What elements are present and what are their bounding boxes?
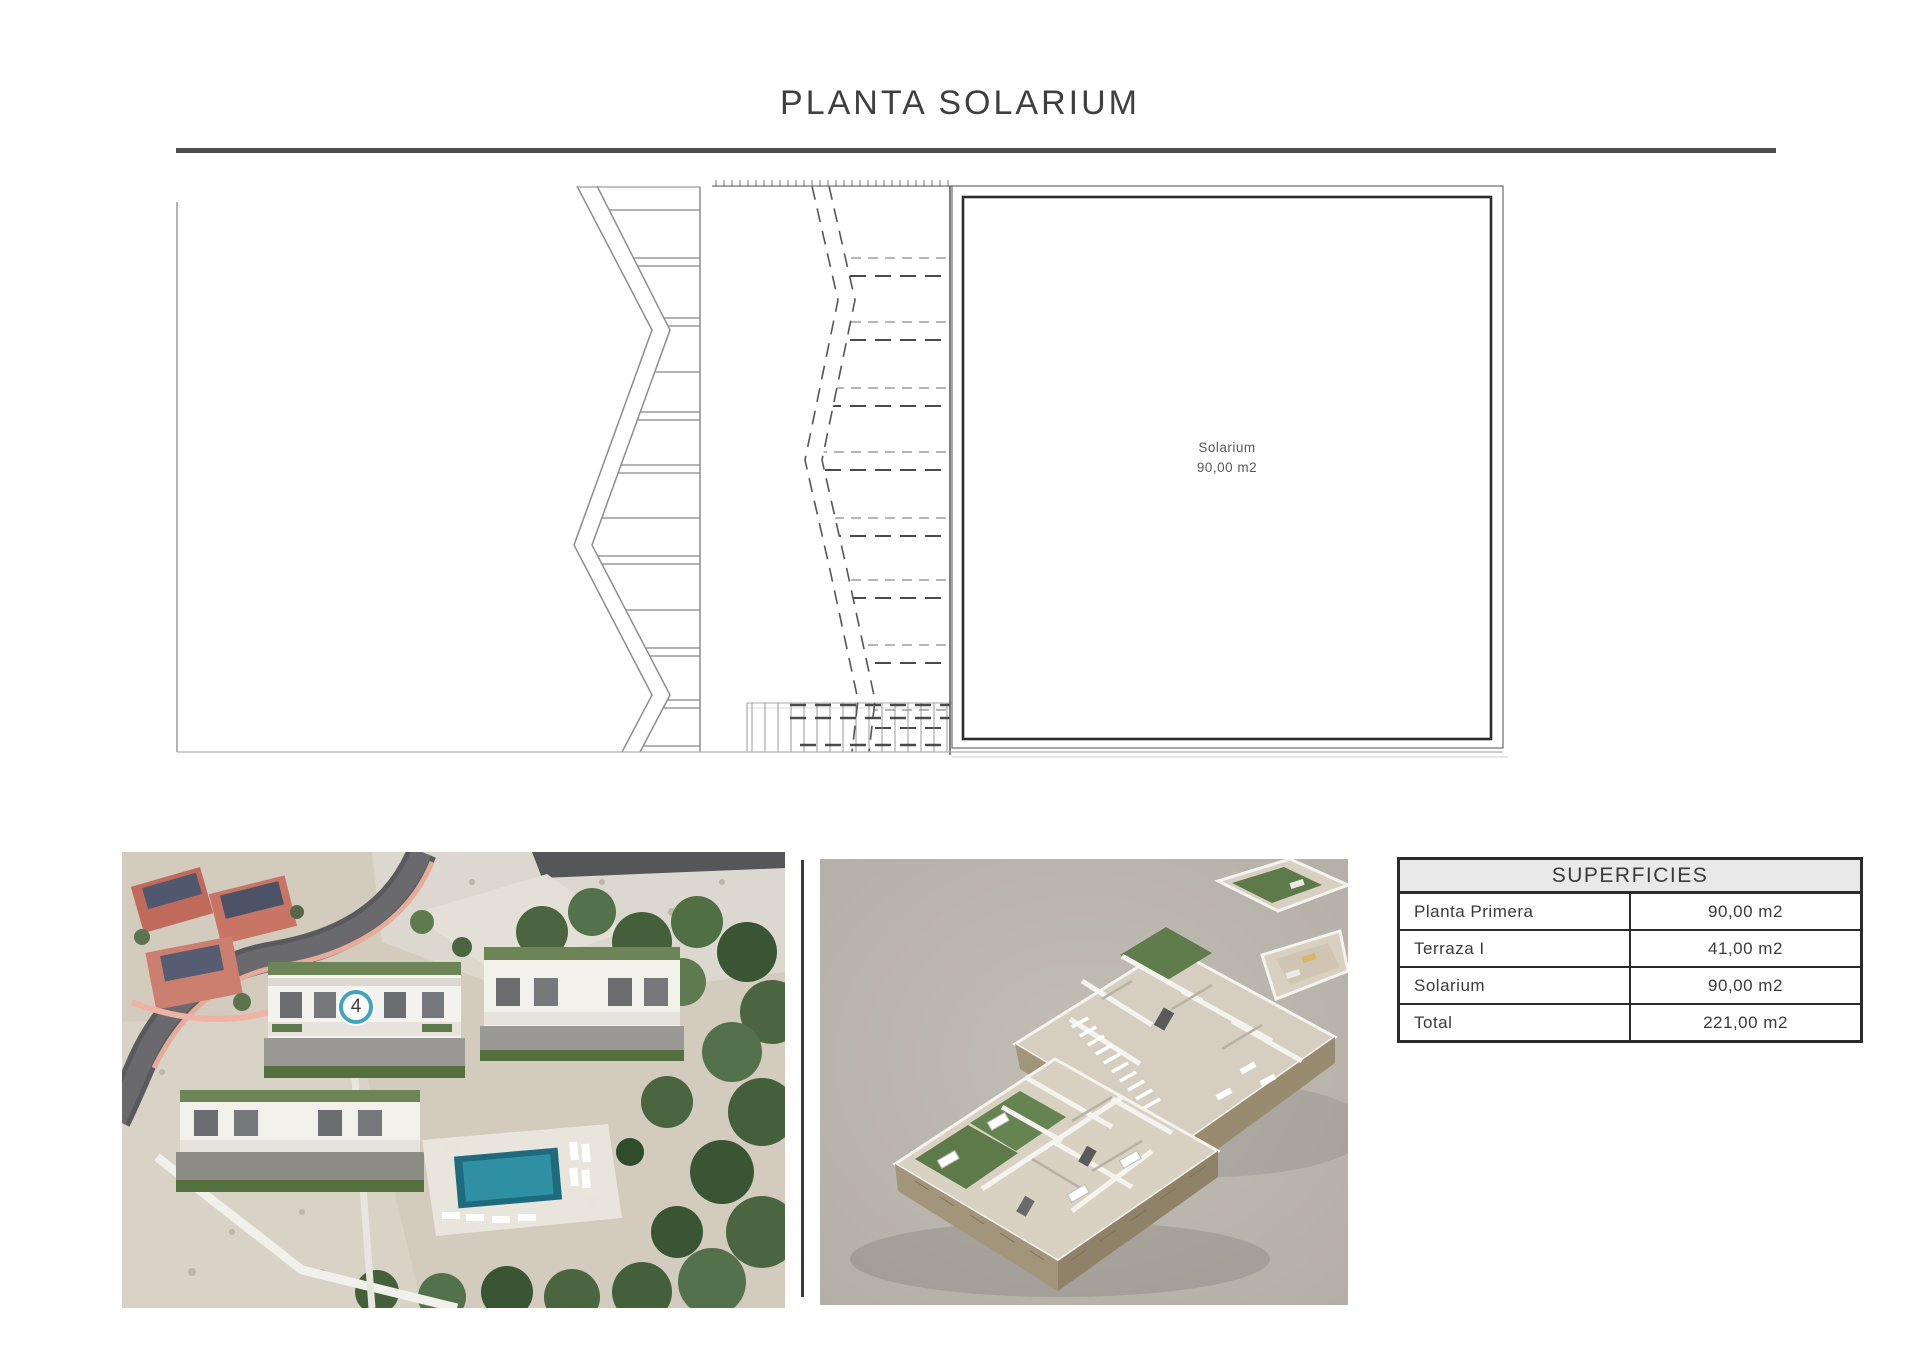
table-row: Total221,00 m2 — [1400, 1004, 1860, 1040]
row-value: 221,00 m2 — [1630, 1004, 1860, 1040]
building-row-lower — [176, 1090, 424, 1192]
terrace-mask — [420, 186, 670, 752]
row-label: Terraza I — [1400, 930, 1630, 967]
table-row: Planta Primera90,00 m2 — [1400, 893, 1860, 931]
superficies-table: SUPERFICIES Planta Primera90,00 m2Terraz… — [1397, 857, 1863, 1043]
isometric-render — [820, 859, 1348, 1305]
table-row: Terraza I41,00 m2 — [1400, 930, 1860, 967]
table-header: SUPERFICIES — [1400, 860, 1860, 893]
unit-badge-number: 4 — [351, 996, 362, 1018]
row-value: 90,00 m2 — [1630, 967, 1860, 1004]
row-value: 41,00 m2 — [1630, 930, 1860, 967]
row-value: 90,00 m2 — [1630, 893, 1860, 931]
superficies-table-body: Planta Primera90,00 m2Terraza I41,00 m2S… — [1400, 893, 1860, 1041]
row-label: Planta Primera — [1400, 893, 1630, 931]
aerial-art — [122, 852, 785, 1308]
room-label: Solarium — [1198, 440, 1255, 455]
table-row: Solarium90,00 m2 — [1400, 967, 1860, 1004]
panel-divider — [801, 860, 804, 1297]
row-label: Total — [1400, 1004, 1630, 1040]
site-aerial-photo: 4 — [122, 852, 785, 1308]
room-area-label: 90,00 m2 — [1197, 460, 1257, 475]
isometric-art — [820, 859, 1348, 1305]
unit-badge: 4 — [339, 990, 373, 1024]
row-label: Solarium — [1400, 967, 1630, 1004]
